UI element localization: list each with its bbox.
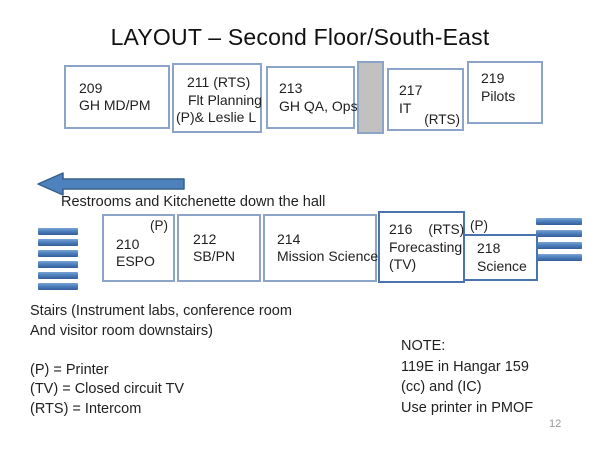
room-number: 219 bbox=[481, 70, 541, 88]
note-line: (cc) and (IC) bbox=[401, 377, 533, 398]
room-label: Forecasting bbox=[389, 239, 463, 257]
stair-bar bbox=[536, 230, 582, 237]
note-line: Use printer in PMOF bbox=[401, 398, 533, 419]
room-label: GH MD/PM bbox=[79, 97, 168, 115]
room-label: SB/PN bbox=[193, 248, 259, 266]
room-tag: (RTS) bbox=[424, 111, 460, 129]
stair-bar bbox=[38, 272, 78, 279]
stair-bar bbox=[38, 239, 78, 246]
note-line: NOTE: bbox=[401, 336, 533, 357]
room-212: 212 SB/PN bbox=[177, 214, 261, 282]
legend-line: And visitor room downstairs) bbox=[30, 322, 292, 342]
room-210: (P) 210 ESPO bbox=[102, 214, 175, 282]
room-213: 213 GH QA, Ops bbox=[266, 66, 355, 129]
room-sublabel: (P)& Leslie L bbox=[174, 109, 260, 127]
legend-line: Stairs (Instrument labs, conference room bbox=[30, 302, 292, 322]
room-label: Science bbox=[477, 258, 536, 276]
room-number: 217 bbox=[399, 82, 462, 100]
room-209: 209 GH MD/PM bbox=[64, 65, 170, 129]
room-number: 216 bbox=[389, 221, 412, 239]
room-label: Pilots bbox=[481, 88, 541, 106]
room-number: 212 bbox=[193, 231, 259, 249]
room-number: 209 bbox=[79, 80, 168, 98]
room-number: 211 (RTS) bbox=[174, 74, 260, 92]
slide: LAYOUT – Second Floor/South-East 209 GH … bbox=[0, 0, 600, 450]
legend-line: (TV) = Closed circuit TV bbox=[30, 380, 292, 400]
room-216: 216 (RTS) Forecasting (TV) bbox=[378, 211, 465, 283]
room-217: 217 IT (RTS) bbox=[387, 68, 464, 131]
room-number: 218 bbox=[477, 240, 536, 258]
stair-bar bbox=[536, 218, 582, 225]
stair-bar bbox=[38, 261, 78, 268]
room-sublabel: (TV) bbox=[389, 256, 463, 274]
room-number: 213 bbox=[279, 80, 353, 98]
note-block: NOTE: 119E in Hangar 159 (cc) and (IC) U… bbox=[401, 336, 533, 418]
stair-bar bbox=[38, 250, 78, 257]
room-219: 219 Pilots bbox=[467, 61, 543, 124]
stairs-left-icon bbox=[38, 228, 78, 294]
legend-line: (RTS) = Intercom bbox=[30, 400, 292, 420]
legend-line: (P) = Printer bbox=[30, 361, 292, 381]
room-214: 214 Mission Science bbox=[263, 214, 377, 282]
room-number: 210 bbox=[116, 236, 173, 254]
stair-bar bbox=[536, 242, 582, 249]
stair-bar bbox=[536, 254, 582, 261]
page-number: 12 bbox=[549, 418, 561, 430]
printer-tag: (P) bbox=[470, 218, 488, 233]
stair-bar bbox=[38, 228, 78, 235]
stairs-right-icon bbox=[536, 218, 582, 266]
page-title: LAYOUT – Second Floor/South-East bbox=[0, 24, 600, 51]
room-tag: (P) bbox=[150, 217, 168, 235]
note-line: 119E in Hangar 159 bbox=[401, 357, 533, 378]
legend: Stairs (Instrument labs, conference room… bbox=[30, 302, 292, 419]
room-tag: (RTS) bbox=[428, 221, 464, 239]
room-label: Mission Science bbox=[277, 248, 375, 266]
room-number: 214 bbox=[277, 231, 375, 249]
room-211: 211 (RTS) Flt Planning (P)& Leslie L bbox=[172, 63, 262, 133]
room-218: 218 Science bbox=[463, 234, 538, 281]
room-label: Flt Planning bbox=[174, 92, 260, 110]
stair-bar bbox=[38, 283, 78, 290]
hall-label: Restrooms and Kitchenette down the hall bbox=[61, 194, 325, 210]
room-label: GH QA, Ops bbox=[279, 98, 353, 116]
room-label: ESPO bbox=[116, 253, 173, 271]
legend-line bbox=[30, 341, 292, 361]
gray-block bbox=[357, 61, 384, 134]
